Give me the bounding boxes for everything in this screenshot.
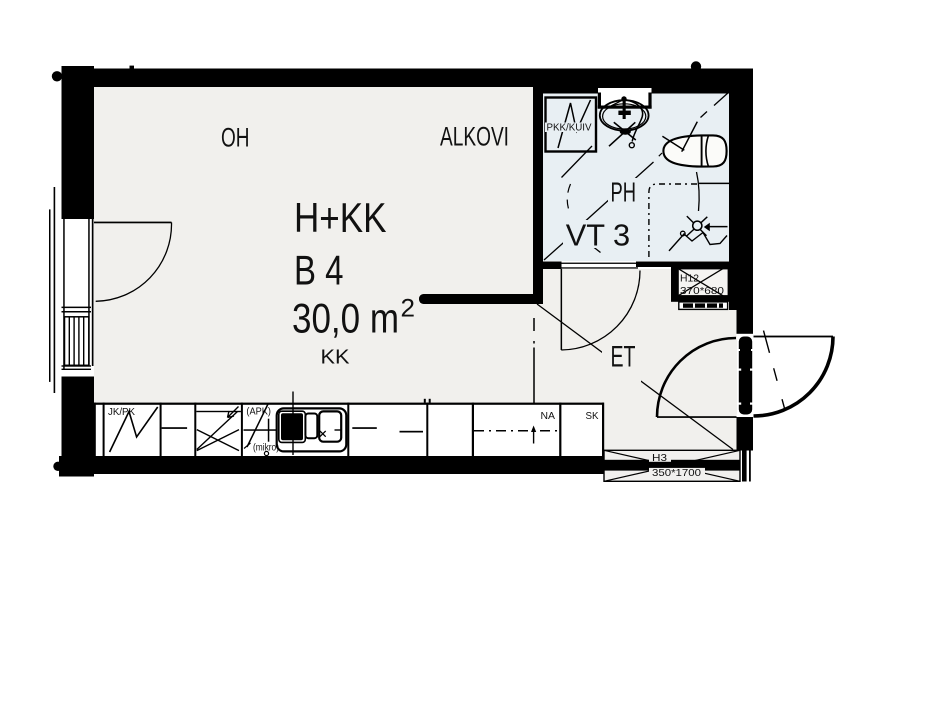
- svg-text:PH: PH: [611, 177, 637, 208]
- svg-text:370*680: 370*680: [680, 285, 724, 297]
- svg-text:VT 3: VT 3: [566, 218, 631, 253]
- svg-text:KK: KK: [321, 346, 350, 369]
- svg-text:B 4: B 4: [294, 247, 344, 294]
- svg-text:NA: NA: [541, 410, 556, 422]
- svg-text:OH: OH: [221, 123, 250, 153]
- svg-text:H+KK: H+KK: [294, 194, 387, 241]
- svg-text:ET: ET: [611, 341, 636, 374]
- svg-text:ALKOVI: ALKOVI: [440, 122, 509, 152]
- svg-text:H3: H3: [652, 452, 667, 464]
- svg-text:350*1700: 350*1700: [652, 467, 701, 479]
- svg-text:2: 2: [401, 295, 416, 323]
- svg-text:SK: SK: [586, 410, 599, 422]
- svg-text:PKK/KUIV: PKK/KUIV: [547, 123, 592, 134]
- svg-text:30,0 m: 30,0 m: [292, 295, 399, 342]
- svg-text:H12: H12: [680, 273, 699, 285]
